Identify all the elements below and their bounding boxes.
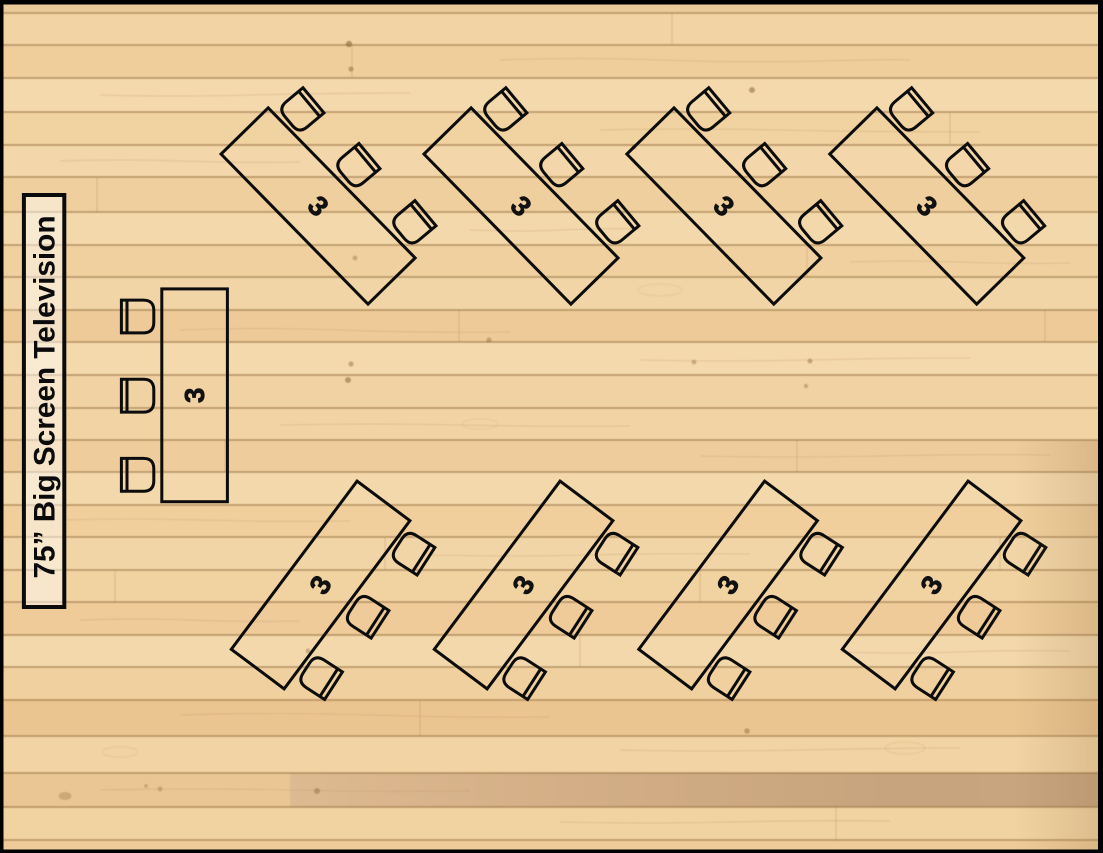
svg-text:3: 3 — [179, 388, 210, 404]
svg-text:75” Big Screen Television: 75” Big Screen Television — [29, 216, 62, 579]
